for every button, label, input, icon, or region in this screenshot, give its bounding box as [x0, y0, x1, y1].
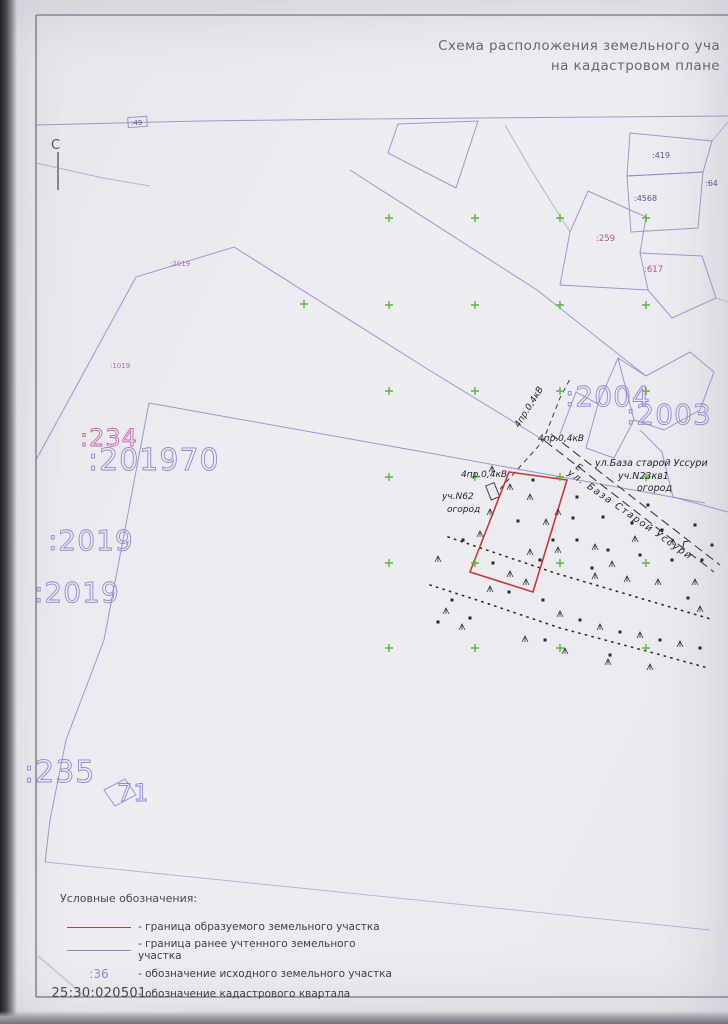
parcel-label-201970: :201970 — [88, 443, 220, 478]
vegetation-mark-icon — [459, 624, 465, 630]
grid-cross-icon — [385, 473, 393, 481]
grid-cross-icon — [385, 301, 393, 309]
vegetation-mark-icon — [692, 579, 698, 585]
survey-dot-icon — [437, 621, 440, 624]
legend-item-new-boundary: - граница образуемого земельного участка — [60, 921, 400, 933]
parcel-label-2019-small: :2019 — [170, 260, 190, 268]
grid-cross-icon — [642, 559, 650, 567]
grid-cross-icon — [556, 301, 564, 309]
transformer-symbol — [486, 483, 500, 500]
vegetation-mark-icon — [592, 573, 598, 579]
survey-dot-icon — [711, 544, 714, 547]
survey-dot-icon — [607, 549, 610, 552]
survey-dot-icon — [647, 504, 650, 507]
vegetation-mark-icon — [647, 664, 653, 670]
vegetation-mark-icon — [477, 531, 483, 537]
cadastral-map-canvas: С — [0, 0, 728, 1024]
parcel-label-64: :64 — [705, 179, 718, 188]
survey-dot-icon — [517, 520, 520, 523]
survey-dot-icon — [639, 554, 642, 557]
grid-cross-icon — [385, 644, 393, 652]
powerline-label-3: 4пр.0,4кВ — [461, 470, 507, 480]
vegetation-mark-icon — [523, 579, 529, 585]
legend-swatch-purple-line — [60, 950, 138, 951]
legend-swatch-quarter-number: 25:30:020501 — [60, 986, 138, 1001]
cadastral-boundaries — [36, 116, 728, 930]
parcel-label-2003: :2003 — [626, 398, 712, 431]
parcel-label-49: :49 — [131, 119, 142, 127]
legend-label: - граница ранее учтенного земельного уча… — [138, 938, 400, 962]
survey-dot-icon — [576, 539, 579, 542]
grid-cross-icon — [556, 387, 564, 395]
grid-cross-icon — [556, 644, 564, 652]
scanned-cadastral-plan-page: С — [0, 0, 728, 1024]
legend-item-source-parcel: :36 - обозначение исходного земельного у… — [60, 967, 400, 981]
vegetation-mark-icon — [522, 636, 528, 642]
north-label: С — [51, 138, 60, 153]
vegetation-mark-icon — [543, 519, 549, 525]
vegetation-mark-icon — [527, 494, 533, 500]
grid-cross-icon — [642, 301, 650, 309]
vegetation-mark-icon — [507, 571, 513, 577]
survey-dot-icon — [572, 517, 575, 520]
legend-item-old-boundary: - граница ранее учтенного земельного уча… — [60, 938, 400, 962]
survey-dot-icon — [544, 639, 547, 642]
vegetation-mark-icon — [697, 606, 703, 612]
title-line-2: на кадастровом плане — [300, 56, 720, 76]
vegetation-mark-icon — [637, 632, 643, 638]
legend-label: - обозначение кадастрового квартала — [138, 988, 400, 1000]
grid-cross-icon — [385, 559, 393, 567]
title-line-1: Схема расположения земельного уча — [300, 36, 720, 56]
grid-cross-icon — [385, 387, 393, 395]
survey-dot-icon — [462, 539, 465, 542]
new-parcel-boundary — [470, 472, 567, 592]
vegetation-mark-icon — [435, 556, 441, 562]
vegetation-mark-icon — [624, 576, 630, 582]
parcel-label-2019-a: :2019 — [48, 524, 134, 557]
north-arrow: С — [51, 138, 60, 190]
grid-cross-icon — [385, 214, 393, 222]
parcel-label-4568: :4568 — [634, 194, 657, 203]
grid-cross-icon — [300, 300, 308, 308]
survey-dot-icon — [579, 619, 582, 622]
parcel-label-1019-small: :1019 — [110, 362, 130, 370]
grid-cross-icon — [556, 559, 564, 567]
powerline-label-1: 4пр.0,4кВ — [513, 385, 546, 429]
legend-header: Условные обозначения: — [60, 892, 400, 905]
parcel-label-617: :617 — [644, 265, 663, 275]
legend: Условные обозначения: - граница образуем… — [60, 892, 400, 1006]
vegetation-mark-icon — [487, 586, 493, 592]
vegetation-mark-icon — [555, 547, 561, 553]
legend-swatch-parcel-number: :36 — [60, 967, 138, 981]
survey-dot-icon — [619, 631, 622, 634]
powerline-label-2: 4пр.0,4кВ — [538, 434, 584, 444]
plot62-line2: огород — [447, 505, 480, 515]
legend-item-quarter-number: 25:30:020501 - обозначение кадастрового … — [60, 986, 400, 1001]
survey-dot-icon — [539, 559, 542, 562]
parcel-label-419: :419 — [652, 151, 670, 160]
parcel-label-235: :235 — [24, 755, 95, 790]
vegetation-mark-icon — [597, 624, 603, 630]
parcel-label-2019-b: :2019 — [34, 576, 120, 609]
street-block-line2: уч.N23кв1 — [617, 471, 669, 482]
survey-dot-icon — [671, 559, 674, 562]
vegetation-mark-icon — [655, 579, 661, 585]
grid-cross-icon — [471, 214, 479, 222]
survey-dot-icon — [699, 647, 702, 650]
survey-dot-icon — [508, 591, 511, 594]
grid-cross-icon — [642, 644, 650, 652]
survey-dot-icon — [469, 617, 472, 620]
survey-dot-icon — [591, 567, 594, 570]
vegetation-mark-icon — [527, 549, 533, 555]
parcel-label-259: :259 — [596, 234, 615, 244]
survey-dot-icon — [451, 599, 454, 602]
document-title: Схема расположения земельного уча на кад… — [300, 36, 720, 76]
street-block-line3: огород — [637, 483, 672, 494]
grid-cross-icon — [471, 644, 479, 652]
vegetation-mark-icon — [632, 536, 638, 542]
vegetation-mark-icon — [677, 641, 683, 647]
survey-dot-icon — [602, 516, 605, 519]
survey-dot-icon — [687, 597, 690, 600]
street-block-line1: ул.База старой Уссури — [594, 458, 708, 469]
plot62-line1: уч.N62 — [441, 492, 474, 502]
survey-dot-icon — [609, 654, 612, 657]
legend-label: - граница образуемого земельного участка — [138, 921, 400, 933]
survey-dot-icon — [552, 539, 555, 542]
vegetation-mark-icon — [562, 648, 568, 654]
vegetation-mark-icon — [609, 561, 615, 567]
parcel-label-71: 71 — [117, 779, 150, 807]
legend-swatch-red-line — [60, 927, 138, 928]
survey-dot-icon — [694, 524, 697, 527]
vegetation-mark-icon — [605, 659, 611, 665]
vegetation-mark-icon — [557, 611, 563, 617]
survey-dot-icon — [576, 496, 579, 499]
grid-cross-icon — [471, 387, 479, 395]
survey-dot-icon — [492, 562, 495, 565]
survey-dot-icon — [701, 559, 704, 562]
vegetation-mark-icon — [592, 544, 598, 550]
vegetation-mark-icon — [443, 608, 449, 614]
vegetation-mark-icon — [507, 484, 513, 490]
survey-dot-icon — [532, 479, 535, 482]
survey-dot-icon — [659, 639, 662, 642]
legend-label: - обозначение исходного земельного участ… — [138, 968, 400, 980]
grid-cross-icon — [471, 301, 479, 309]
survey-dot-icon — [542, 599, 545, 602]
